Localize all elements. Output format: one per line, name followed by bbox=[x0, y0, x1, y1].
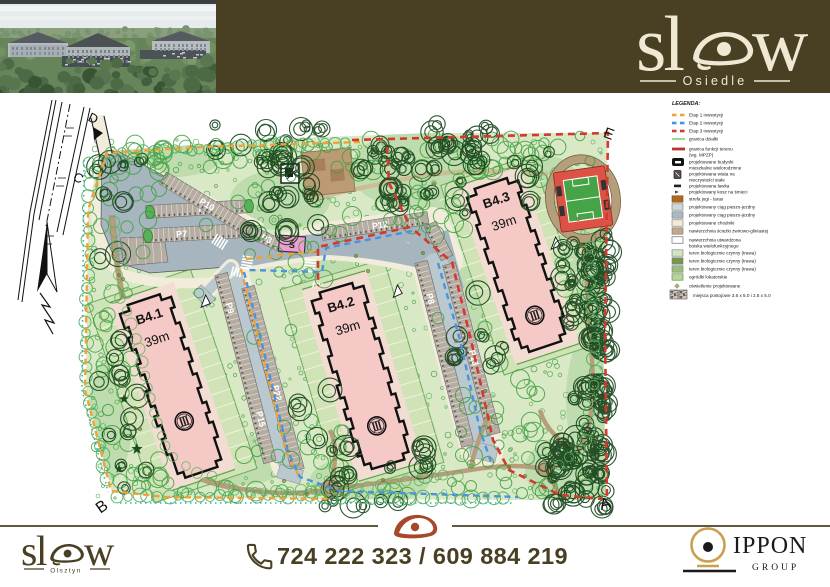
svg-text:w: w bbox=[752, 8, 808, 87]
svg-text:strefa jogi - taras: strefa jogi - taras bbox=[689, 197, 724, 202]
svg-text:724 222 323 / 609 884 219: 724 222 323 / 609 884 219 bbox=[277, 543, 568, 569]
svg-text:Osiedle: Osiedle bbox=[683, 74, 748, 88]
svg-text:LEGENDA:: LEGENDA: bbox=[672, 101, 700, 107]
svg-text:miejsca postojowe 3.6 x 5.0 i: miejsca postojowe 3.6 x 5.0 i 2.5 x 5.0 bbox=[693, 293, 771, 298]
svg-text:projektowany ciąg pieszo-jezdn: projektowany ciąg pieszo-jezdny bbox=[689, 213, 756, 218]
svg-text:sl: sl bbox=[636, 8, 684, 87]
svg-text:Etap 3 inwestycji: Etap 3 inwestycji bbox=[689, 129, 723, 134]
svg-text:oświetlenie projektowane: oświetlenie projektowane bbox=[689, 284, 741, 289]
svg-text:Olsztyn: Olsztyn bbox=[50, 568, 81, 575]
svg-text:projektowane budynki: projektowane budynki bbox=[689, 160, 733, 165]
svg-text:projektowany kosz na śmieci: projektowany kosz na śmieci bbox=[689, 190, 747, 195]
svg-text:teren biologicznie czynny (tra: teren biologicznie czynny (trawa) bbox=[689, 267, 756, 272]
svg-text:w: w bbox=[84, 529, 115, 575]
svg-text:ogródki lokatorskie: ogródki lokatorskie bbox=[689, 275, 728, 280]
svg-text:teren biologicznie czynny (tra: teren biologicznie czynny (trawa) bbox=[689, 259, 756, 264]
svg-text:teren biologicznie czynny (tra: teren biologicznie czynny (trawa) bbox=[689, 251, 756, 256]
svg-text:projektowany ciąg pieszo-jezdn: projektowany ciąg pieszo-jezdny bbox=[689, 205, 756, 210]
svg-text:P7: P7 bbox=[176, 229, 188, 240]
svg-text:mieszkalne wielorodzinne: mieszkalne wielorodzinne bbox=[689, 166, 742, 171]
svg-text:granica funkcji terenu: granica funkcji terenu bbox=[689, 147, 733, 152]
svg-text:projektowane chodniki: projektowane chodniki bbox=[689, 221, 734, 226]
svg-text:Etap 2 inwestycji: Etap 2 inwestycji bbox=[689, 121, 723, 126]
svg-text:nawierzchnia ścieżki żwirowo-g: nawierzchnia ścieżki żwirowo-gliniastej bbox=[689, 229, 768, 234]
svg-text:projektowana ławka: projektowana ławka bbox=[689, 184, 730, 189]
svg-text:GROUP: GROUP bbox=[752, 563, 799, 573]
svg-text:projektowana wiata na: projektowana wiata na bbox=[689, 172, 735, 177]
svg-text:nawierzchnia utwardzona: nawierzchnia utwardzona bbox=[689, 238, 741, 243]
svg-text:nieczystości stałe: nieczystości stałe bbox=[689, 178, 725, 183]
svg-text:Etap 1 inwestycji: Etap 1 inwestycji bbox=[689, 113, 723, 118]
svg-text:granica działki: granica działki bbox=[689, 137, 718, 142]
svg-text:E: E bbox=[601, 124, 616, 143]
svg-text:boiska wielofunkcyjnego: boiska wielofunkcyjnego bbox=[689, 244, 739, 249]
svg-text:(wg. MPZP): (wg. MPZP) bbox=[689, 153, 714, 158]
svg-text:IPPON: IPPON bbox=[733, 533, 807, 559]
svg-text:sl: sl bbox=[21, 529, 47, 575]
